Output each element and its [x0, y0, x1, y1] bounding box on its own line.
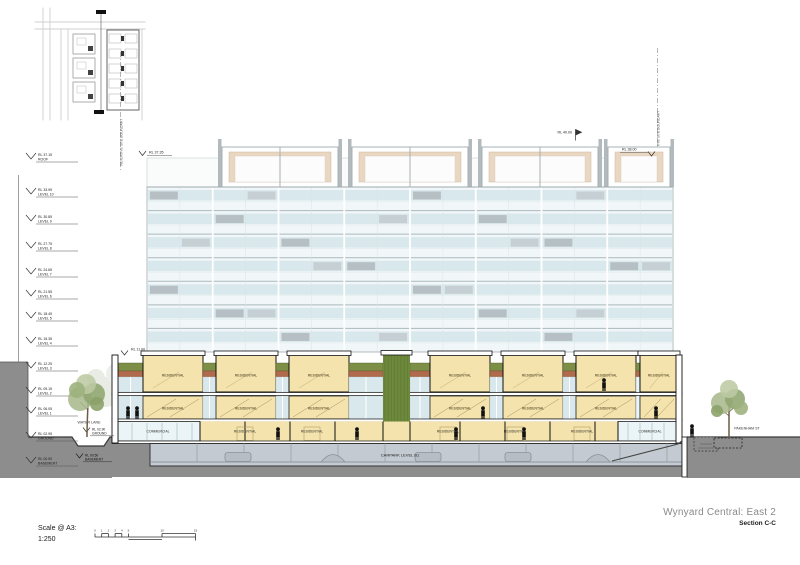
level-name: GROUND	[38, 437, 54, 441]
scale-label: Scale @ A3:	[38, 523, 77, 534]
residential-label-upper: RESIDENTIAL	[235, 374, 257, 378]
residential-label-mid: RESIDENTIAL	[522, 407, 544, 411]
level-rl: RL 37.15	[38, 153, 52, 157]
boundary-label-left: INDICATIVE SITE BOUNDARY	[120, 118, 124, 166]
key-plan-building-east	[107, 30, 139, 110]
earth-under-commercial	[112, 441, 150, 477]
lane-basement-name: BASEMENT	[85, 458, 103, 462]
key-plan	[35, 8, 145, 120]
scale-tick-label: 3	[114, 529, 116, 533]
unit-parapet-cap	[501, 351, 565, 356]
spandrel-panel	[216, 215, 244, 223]
scale-tick-label: 2	[108, 529, 110, 533]
person-leg	[483, 416, 484, 419]
level-name: LEVEL 5	[38, 317, 52, 321]
person-body	[135, 410, 139, 416]
roof-post	[348, 139, 352, 187]
person-body	[522, 431, 526, 437]
person-leg	[602, 388, 603, 391]
green-roof	[203, 363, 216, 371]
person-leg	[522, 437, 523, 440]
spandrel-panel	[479, 215, 507, 223]
spandrel-panel	[511, 239, 539, 247]
terracotta-band	[636, 371, 640, 377]
spandrel-panel	[150, 192, 178, 200]
terracotta-band	[490, 371, 503, 377]
unit-parapet-cap	[214, 351, 278, 356]
level-check-icon	[26, 337, 36, 343]
spandrel-panel	[545, 333, 573, 341]
key-plan-buildings-west	[73, 34, 95, 102]
lane-ground-name: GROUND	[92, 432, 107, 436]
residential-label-upper: RESIDENTIAL	[522, 374, 544, 378]
residential-label-upper: RESIDENTIAL	[449, 374, 471, 378]
level-rl: RL 09.15	[38, 387, 52, 391]
terracotta-band	[410, 371, 430, 377]
level-rl: RL 02.95	[38, 432, 52, 436]
person-leg	[654, 416, 655, 419]
penthouse-glazing	[621, 156, 657, 182]
roof-post	[599, 139, 603, 187]
level-rl: RL 24.65	[38, 268, 52, 272]
roof-post	[339, 139, 343, 187]
unit-parapet-cap	[141, 351, 205, 356]
level-check-icon	[26, 153, 36, 159]
level-check-icon	[121, 351, 128, 356]
ground-floor-label: RESIDENTIAL	[571, 430, 593, 434]
residential-label-mid: RESIDENTIAL	[595, 407, 617, 411]
atrium-cap	[381, 351, 412, 356]
scale-bar: 0123451015	[94, 529, 197, 541]
spandrel-panel	[282, 333, 310, 341]
person-body	[454, 431, 458, 437]
person-body	[276, 431, 280, 437]
spandrel-panel	[576, 192, 604, 200]
level-rl: RL 15.35	[38, 337, 52, 341]
level-rl: RL 12.25	[38, 362, 52, 366]
green-roof	[563, 363, 576, 371]
spandrel-panel	[413, 192, 441, 200]
spandrel-panel	[479, 309, 507, 317]
person-leg	[524, 437, 525, 440]
title-block: Wynyard Central: East 2 Section C-C	[663, 507, 776, 528]
spot-rl-roof-center: RL 40.00	[558, 131, 572, 135]
level-name: ROOF	[38, 158, 48, 162]
tower-elevation	[147, 139, 674, 352]
level-name: LEVEL 6	[38, 295, 52, 299]
level-name: LEVEL 8	[38, 247, 52, 251]
person-head	[602, 378, 606, 382]
unit-parapet-cap	[638, 351, 680, 356]
level-rl: RL 06.05	[38, 407, 52, 411]
spandrel-panel	[379, 333, 407, 341]
level-name: LEVEL 3	[38, 367, 52, 371]
basement-wall-right	[682, 437, 687, 477]
level-name: BASEMENT	[38, 462, 58, 466]
roof-post	[469, 139, 473, 187]
roof-post	[671, 139, 675, 187]
level-flag-icon	[576, 130, 582, 141]
spandrel-panel	[445, 286, 473, 294]
scale-block: Scale @ A3: 1:250	[38, 523, 77, 545]
person-leg	[481, 416, 482, 419]
person-head	[481, 406, 485, 410]
podium-wall-left	[112, 355, 118, 443]
spandrel-panel	[313, 262, 341, 270]
person-head	[355, 427, 359, 431]
ground-floor-label: RESIDENTIAL	[234, 430, 256, 434]
person-leg	[656, 416, 657, 419]
unit-parapet-cap	[574, 351, 638, 356]
residential-label-mid: RESIDENTIAL	[308, 407, 330, 411]
level-name: LEVEL 4	[38, 342, 52, 346]
spandrel-panel	[216, 309, 244, 317]
person-body	[481, 410, 485, 416]
person-head	[135, 406, 139, 410]
car-outline	[505, 453, 531, 462]
person-head	[690, 424, 694, 428]
terracotta-band	[349, 371, 383, 377]
residential-label-mid: RESIDENTIAL	[235, 407, 257, 411]
terracotta-band	[276, 371, 289, 377]
roof-post	[604, 139, 608, 187]
spot-rl-roof-right: RL 38.00	[622, 148, 636, 152]
person-leg	[128, 416, 129, 419]
terracotta-band	[203, 371, 216, 377]
level-rl: RL 27.75	[38, 242, 52, 246]
level-rl: RL 21.55	[38, 290, 52, 294]
person-leg	[126, 416, 127, 419]
person-leg	[357, 437, 358, 440]
level-check-icon	[26, 312, 36, 318]
person-leg	[692, 434, 693, 437]
spot-rl-roof-left: RL 37.35	[149, 151, 163, 155]
person-leg	[355, 437, 356, 440]
level-rl: RL 33.95	[38, 188, 52, 192]
green-roof	[636, 363, 640, 371]
spandrel-panel	[379, 215, 407, 223]
scale-tick-label: 0	[94, 529, 96, 533]
terracotta-band	[118, 371, 143, 377]
ground-floor-band	[118, 422, 678, 442]
person-leg	[137, 416, 138, 419]
green-roof	[490, 363, 503, 371]
level-check-icon	[26, 268, 36, 274]
person-figure	[690, 424, 694, 437]
spandrel-panel	[248, 309, 276, 317]
podium-section: RESIDENTIALRESIDENTIALRESIDENTIALRESIDEN…	[112, 351, 682, 444]
person-body	[690, 428, 694, 434]
scale-tick-label: 15	[194, 529, 198, 533]
ground-floor-label: COMMERCIAL	[639, 430, 662, 434]
person-body	[355, 431, 359, 437]
residential-label-upper: RESIDENTIAL	[648, 374, 670, 378]
ground-floor-label: RESIDENTIAL	[301, 430, 323, 434]
spandrel-panel	[150, 286, 178, 294]
earth-under-carpark	[150, 466, 687, 477]
scale-tick-label: 5	[128, 529, 130, 533]
person-leg	[604, 388, 605, 391]
unit-parapet-cap	[287, 351, 351, 356]
drawing-title: Section C-C	[663, 520, 776, 528]
level-check-icon	[26, 290, 36, 296]
residential-label-upper: RESIDENTIAL	[308, 374, 330, 378]
person-leg	[456, 437, 457, 440]
spandrel-panel	[347, 262, 375, 270]
podium-wall-right	[676, 355, 682, 443]
scale-tick-label: 4	[121, 529, 123, 533]
spandrel-panel	[642, 262, 670, 270]
person-head	[276, 427, 280, 431]
drawing-sheet: INDICATIVE SITE BOUNDARY INDICATIVE SITE…	[0, 0, 800, 565]
water-lane-label: WATER LANE	[78, 421, 102, 425]
car-outline	[225, 453, 251, 462]
person-leg	[690, 434, 691, 437]
person-leg	[276, 437, 277, 440]
green-roof	[410, 363, 430, 371]
residential-label-upper: RESIDENTIAL	[162, 374, 184, 378]
terracotta-band	[563, 371, 576, 377]
scale-tick-label: 1	[101, 529, 103, 533]
project-title: Wynyard Central: East 2	[663, 507, 776, 520]
tree-planter	[714, 438, 742, 448]
green-roof	[349, 363, 383, 371]
spandrel-panel	[545, 239, 573, 247]
person-head	[454, 427, 458, 431]
spandrel-panel	[282, 239, 310, 247]
level-rl: RL 18.45	[38, 312, 52, 316]
level-rl: RL 00.50	[38, 457, 52, 461]
roof-post	[218, 139, 222, 187]
pakenham-st-label: PAKENHAM ST	[734, 427, 760, 431]
spandrel-panel	[182, 239, 210, 247]
residential-label-upper: RESIDENTIAL	[595, 374, 617, 378]
person-head	[522, 427, 526, 431]
ground-floor-label: COMMERCIAL	[147, 430, 170, 434]
person-head	[126, 406, 130, 410]
spandrel-panel	[413, 286, 441, 294]
level-rl: RL 30.85	[38, 215, 52, 219]
residential-label-mid: RESIDENTIAL	[162, 407, 184, 411]
carpark-label: CARPARK LEVEL B1	[381, 453, 420, 458]
scale-tick-label: 10	[160, 529, 164, 533]
person-head	[654, 406, 658, 410]
spandrel-panel	[248, 192, 276, 200]
person-body	[654, 410, 658, 416]
level-check-icon	[26, 215, 36, 221]
person-leg	[454, 437, 455, 440]
level-name: LEVEL 7	[38, 273, 52, 277]
section-drawing: INDICATIVE SITE BOUNDARY INDICATIVE SITE…	[0, 0, 800, 565]
level-check-icon	[26, 188, 36, 194]
scale-ratio: 1:250	[38, 534, 77, 545]
person-body	[602, 382, 606, 388]
level-name: LEVEL 10	[38, 193, 54, 197]
spot-rl-podium-top: RL 11.00	[131, 348, 145, 352]
level-name: LEVEL 1	[38, 412, 52, 416]
green-roof	[276, 363, 289, 371]
person-leg	[135, 416, 136, 419]
green-roof	[118, 363, 143, 371]
key-plan-section-line	[94, 10, 106, 114]
level-name: LEVEL 2	[38, 392, 52, 396]
unit-parapet-cap	[428, 351, 492, 356]
residential-label-mid: RESIDENTIAL	[449, 407, 471, 411]
level-check-icon	[139, 151, 146, 156]
level-name: LEVEL 9	[38, 220, 52, 224]
person-body	[126, 410, 130, 416]
roof-post	[478, 139, 482, 187]
spandrel-panel	[610, 262, 638, 270]
spandrel-panel	[576, 309, 604, 317]
person-leg	[278, 437, 279, 440]
level-check-icon	[26, 242, 36, 248]
